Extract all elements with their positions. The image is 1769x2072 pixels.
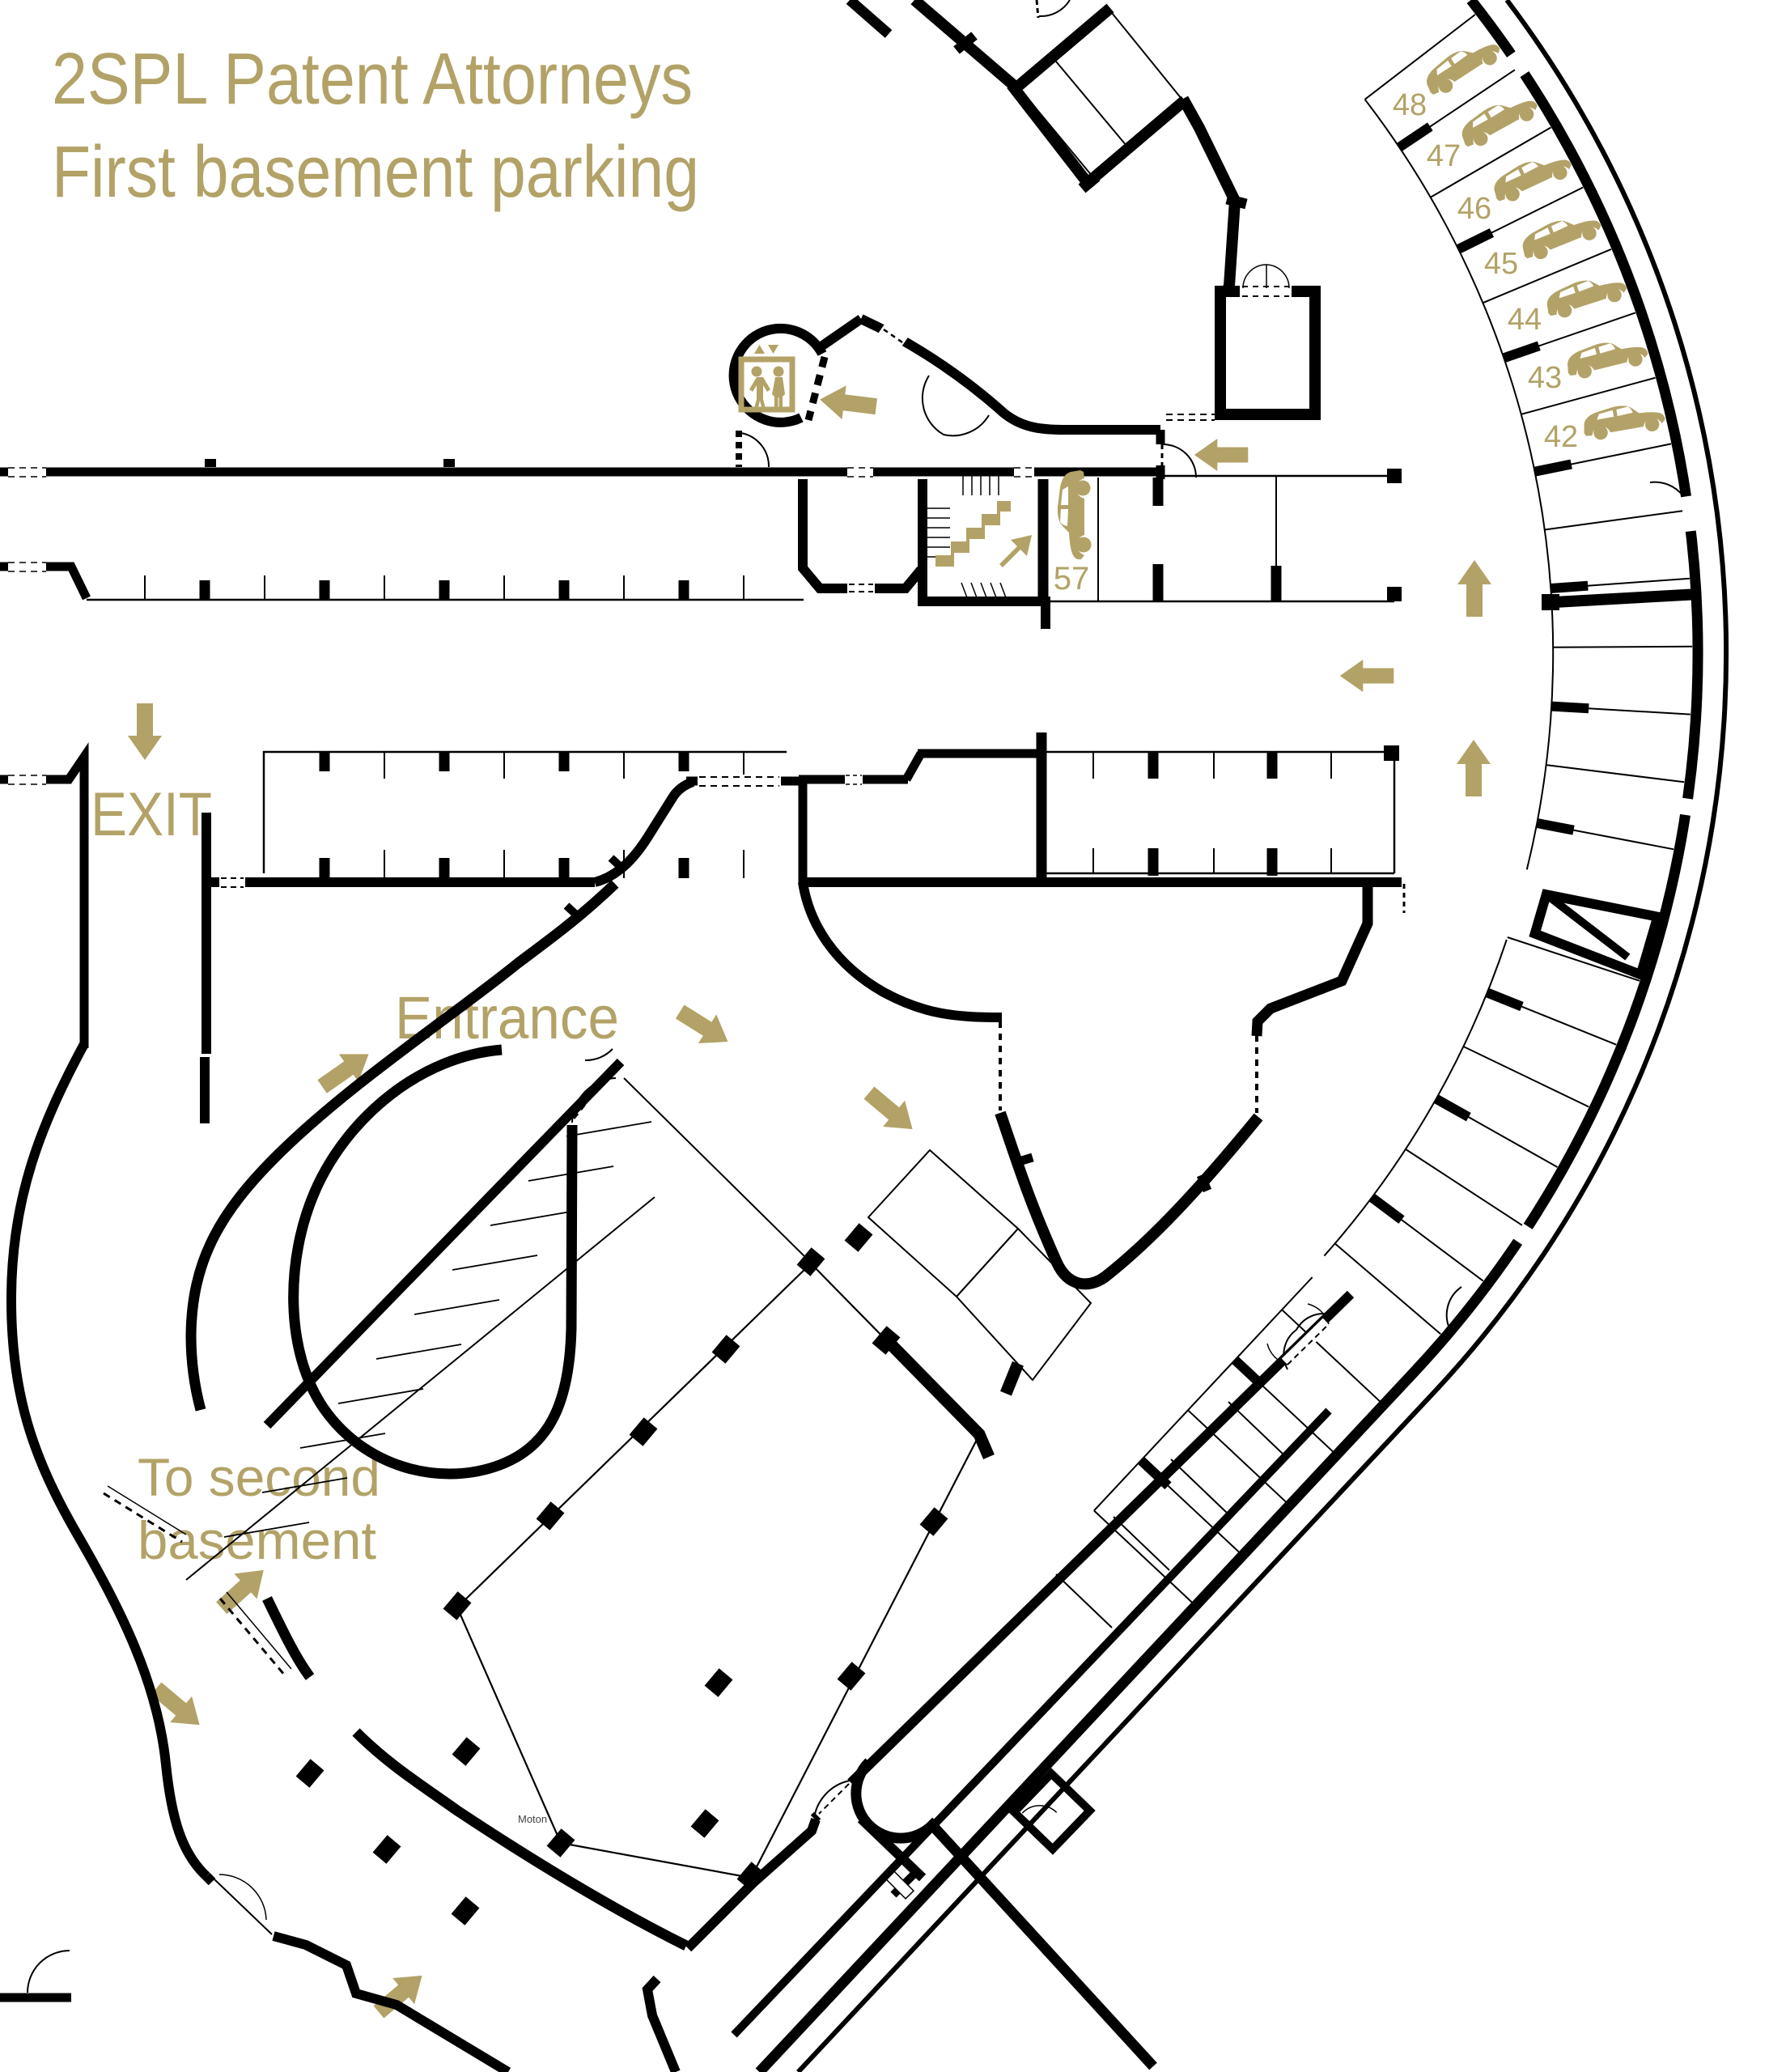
svg-text:42: 42 [1544, 420, 1578, 454]
svg-text:basement: basement [138, 1510, 376, 1570]
svg-text:43: 43 [1528, 361, 1562, 395]
svg-text:47: 47 [1427, 139, 1461, 173]
svg-text:57: 57 [1054, 561, 1090, 597]
svg-text:44: 44 [1508, 303, 1542, 337]
svg-text:45: 45 [1484, 247, 1518, 281]
svg-text:Entrance: Entrance [395, 984, 619, 1051]
svg-text:2SPL Patent Attorneys: 2SPL Patent Attorneys [52, 39, 693, 120]
svg-text:46: 46 [1457, 192, 1491, 226]
svg-text:To second: To second [138, 1447, 380, 1507]
svg-text:48: 48 [1393, 88, 1427, 122]
svg-text:Moton: Moton [518, 1813, 547, 1825]
svg-text:First basement parking: First basement parking [52, 132, 699, 213]
svg-text:EXIT: EXIT [91, 780, 212, 849]
